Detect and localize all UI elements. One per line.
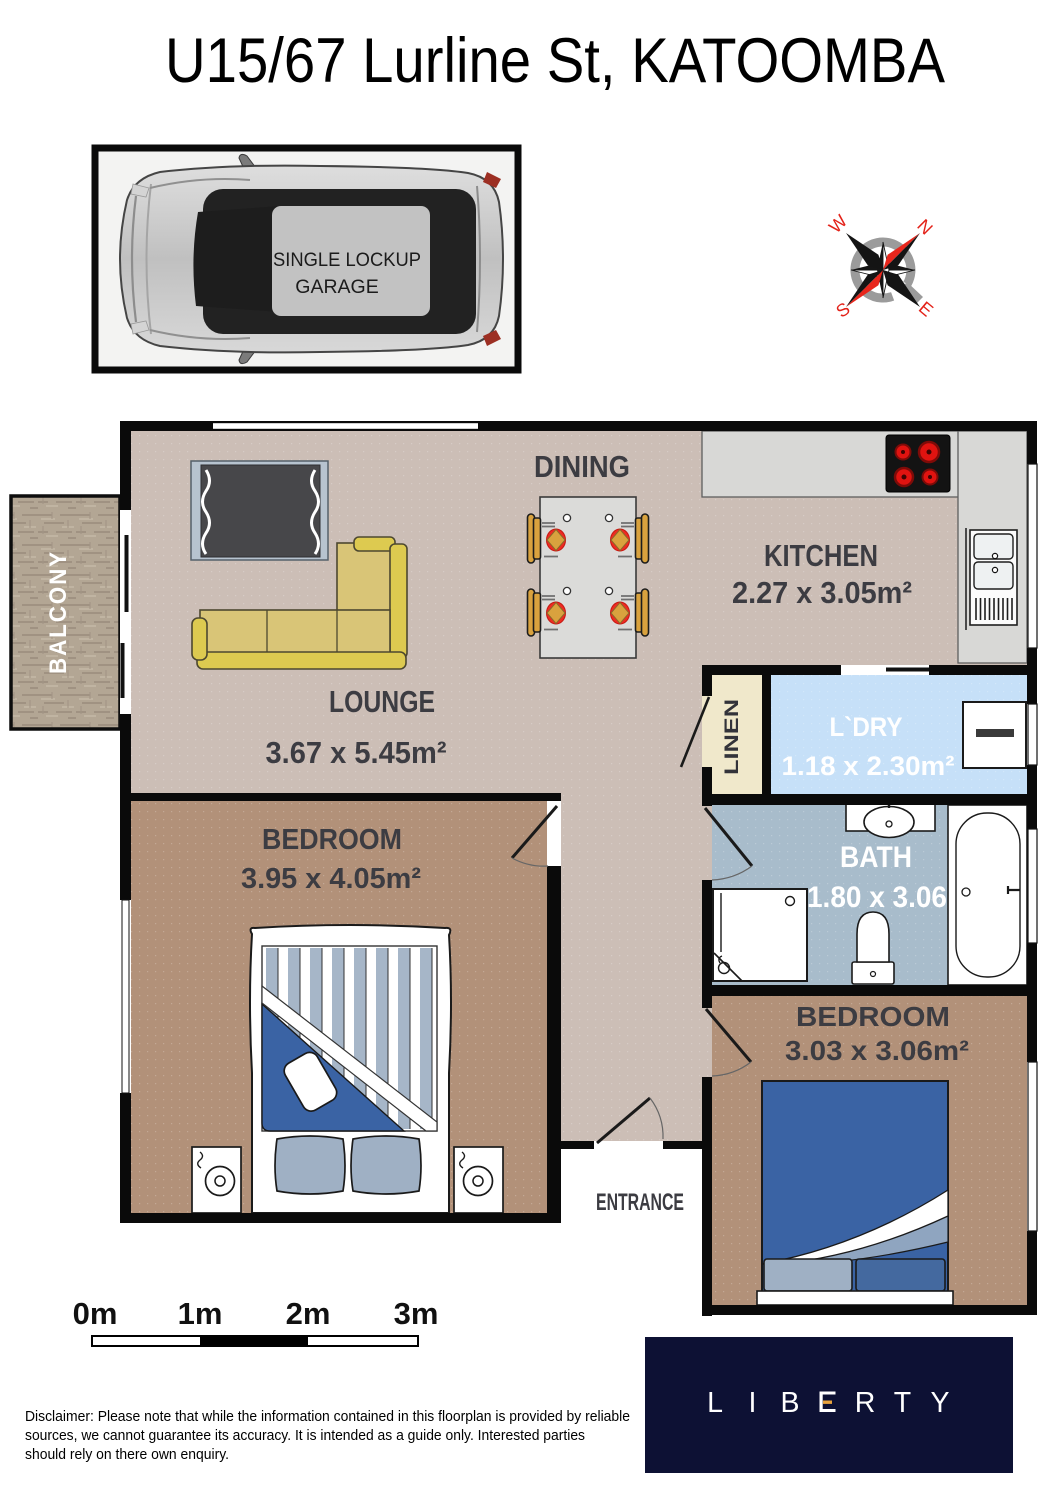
svg-text:I: I	[749, 1387, 757, 1419]
svg-text:BALCONY: BALCONY	[45, 550, 72, 674]
svg-text:U15/67 Lurline St, KATOOMBA: U15/67 Lurline St, KATOOMBA	[165, 26, 945, 96]
svg-text:Disclaimer: Please note that w: Disclaimer: Please note that while the i…	[25, 1409, 630, 1425]
svg-text:1.80 x 3.06: 1.80 x 3.06	[807, 881, 947, 914]
svg-text:BEDROOM: BEDROOM	[262, 824, 402, 856]
svg-text:3m: 3m	[394, 1296, 439, 1331]
svg-text:3.67 x 5.45m²: 3.67 x 5.45m²	[266, 735, 447, 770]
svg-text:BATH: BATH	[840, 841, 912, 874]
svg-text:3.95 x 4.05m²: 3.95 x 4.05m²	[241, 863, 421, 895]
svg-text:0m: 0m	[73, 1296, 118, 1331]
svg-text:LINEN: LINEN	[722, 699, 743, 775]
svg-text:DINING: DINING	[534, 449, 630, 484]
svg-text:2m: 2m	[286, 1296, 331, 1331]
svg-text:Y: Y	[930, 1387, 949, 1419]
svg-text:1m: 1m	[178, 1296, 223, 1331]
svg-text:L: L	[707, 1387, 723, 1419]
svg-text:LOUNGE: LOUNGE	[329, 684, 435, 719]
svg-text:ENTRANCE: ENTRANCE	[596, 1189, 684, 1216]
svg-text:L`DRY: L`DRY	[830, 712, 903, 742]
svg-text:R: R	[855, 1387, 876, 1419]
svg-text:T: T	[894, 1387, 911, 1419]
svg-text:3.03 x 3.06m²: 3.03 x 3.06m²	[785, 1035, 969, 1066]
svg-text:BEDROOM: BEDROOM	[796, 1001, 950, 1032]
svg-text:2.27 x 3.05m²: 2.27 x 3.05m²	[732, 575, 912, 610]
svg-text:should rely on there own enqui: should rely on there own enquiry.	[25, 1447, 229, 1463]
svg-text:sources, we cannot guarantee i: sources, we cannot guarantee its accurac…	[25, 1428, 585, 1444]
svg-text:B: B	[780, 1387, 799, 1419]
svg-text:KITCHEN: KITCHEN	[764, 538, 878, 573]
svg-text:SINGLE LOCKUP: SINGLE LOCKUP	[273, 250, 421, 271]
svg-text:1.18 x 2.30m²: 1.18 x 2.30m²	[782, 751, 955, 781]
svg-text:GARAGE: GARAGE	[295, 276, 378, 298]
